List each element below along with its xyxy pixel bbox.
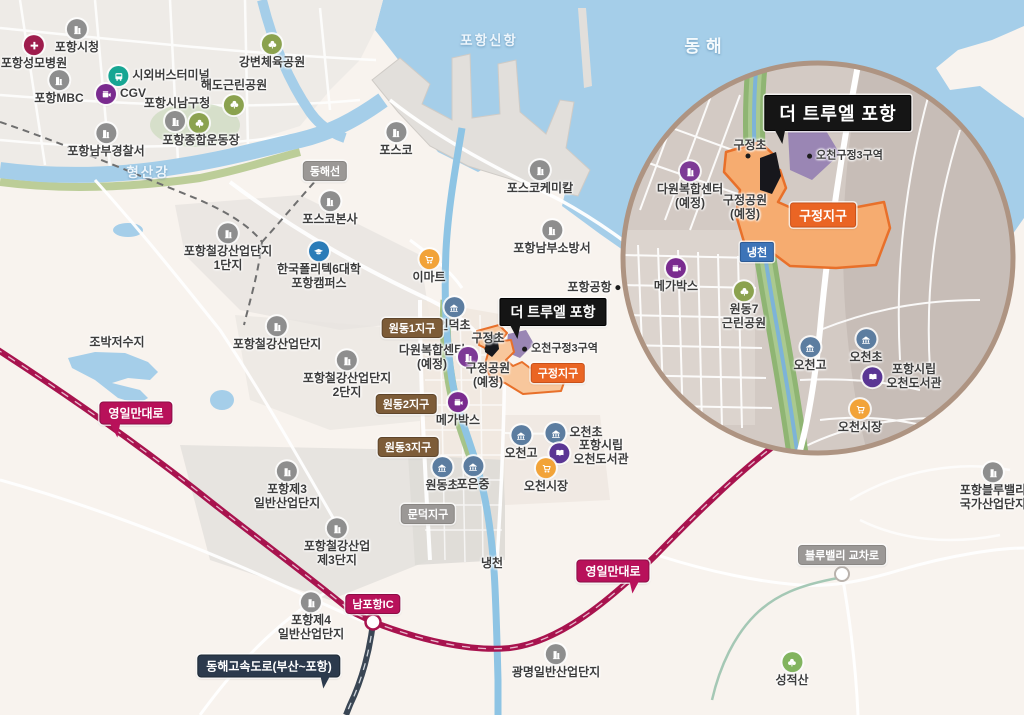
ocheon-gujeong3-zone-main: 오천구정3구역 [522, 343, 598, 356]
map-label: 포항블루밸리국가산업단지 [960, 484, 1024, 512]
map-label: 오천시장 [524, 480, 568, 494]
map-label: 구정공원(예정) [723, 194, 767, 222]
intercity-bus-terminal: 시외버스터미널 [108, 66, 209, 86]
poi-dot [807, 153, 812, 158]
map-label: 형산강 [126, 165, 169, 181]
map-label: 포항성모병원 [1, 57, 67, 71]
cinema-icon [666, 258, 686, 278]
pohang-4th-general-industrial: 포항제4일반산업단지 [278, 592, 344, 642]
building-icon [327, 518, 347, 538]
pohang-sports-complex: 포항종합운동장 [162, 134, 239, 148]
map-label: 포은중 [456, 478, 489, 492]
map-label: 메가박스 [654, 280, 698, 294]
wondong3-district-badge: 원동3지구 [378, 437, 439, 457]
ocheon-gujeong3-zone-inset: 오천구정3구역 [807, 150, 883, 163]
school-icon [800, 337, 820, 357]
map-label: 구정초 [471, 332, 504, 346]
map-label: 포항MBC [34, 92, 83, 106]
school-icon [463, 456, 483, 476]
dawon-complex-inset: 다원복합센터(예정) [657, 161, 723, 211]
donghae-line-badge: 동해선 [303, 161, 347, 181]
park-icon [224, 95, 244, 115]
pohang-airport: 포항공항 [567, 281, 620, 295]
map-label: 오천고 [793, 359, 826, 373]
gujeong-elementary-dot-inset [746, 154, 751, 159]
map-label: 원동7근린공원 [722, 303, 766, 331]
hospital-icon [24, 35, 44, 55]
gangbyeon-sports-park: 강변체육공원 [239, 34, 305, 70]
map-label: 포항남부소방서 [513, 242, 590, 256]
pohang-new-port-label: 포항신항 [460, 33, 518, 49]
map-label: 포항시립오천도서관 [886, 363, 941, 391]
pohang-nambu-police: 포항남부경찰서 [67, 123, 144, 159]
library-icon [862, 367, 882, 387]
map-label: 메가박스 [436, 414, 480, 428]
donghae-expressway-badge: 동해고속도로(부산~포항) [197, 655, 340, 678]
hyeongsan-river-label: 형산강 [126, 165, 169, 181]
truel-pohang-badge-inset: 더 트루엘 포항 [764, 95, 911, 131]
map-label: 오천시장 [838, 421, 882, 435]
mundeok-district-badge: 문덕지구 [401, 504, 455, 524]
map-label: 포항시립오천도서관 [573, 439, 628, 467]
school-icon [444, 297, 464, 317]
pohang-mbc: 포항MBC [34, 70, 83, 106]
ocheon-library-inset: 포항시립오천도서관 [862, 363, 941, 391]
gujeong-elementary-inset: 구정초 [733, 139, 766, 153]
steel-industrial-complex: 포항철강산업단지 [233, 316, 321, 352]
school-icon [856, 329, 876, 349]
ocheon-market-inset: 오천시장 [838, 399, 882, 435]
map-label: 오천구정3구역 [531, 343, 598, 356]
map-label: 구정초 [733, 139, 766, 153]
map-label: 강변체육공원 [239, 56, 305, 70]
megabox-inset: 메가박스 [654, 258, 698, 294]
stadium-park-icon [189, 113, 209, 133]
cinema-icon [448, 392, 468, 412]
map-label: 냉천 [481, 557, 503, 571]
naengcheon-badge-inset: 냉천 [740, 242, 774, 262]
building-icon [49, 70, 69, 90]
building-icon [337, 350, 357, 370]
school-icon [432, 457, 452, 477]
yeongilman-road-badge-right: 영일만대로 [576, 560, 649, 583]
posco-hq: 포스코본사 [302, 191, 357, 227]
bus-icon [108, 66, 128, 86]
pohang-nambu-fire-station: 포항남부소방서 [513, 220, 590, 256]
cart-icon [419, 249, 439, 269]
park-icon [734, 281, 754, 301]
ocheon-elementary-inset: 오천초 [849, 329, 882, 365]
map-label: 포항제3일반산업단지 [254, 483, 320, 511]
map-label: 한국폴리텍6대학포항캠퍼스 [277, 263, 361, 291]
map-label: CGV [120, 87, 146, 101]
map-label: 포항신항 [460, 33, 518, 49]
poi-dot [485, 347, 490, 352]
ocheon-high-inset: 오천고 [793, 337, 826, 373]
steel-industrial-complex-1: 포항철강산업단지1단지 [184, 223, 272, 273]
nampohang-ic-badge: 남포항IC [345, 594, 400, 614]
gujeong-district-badge-main: 구정지구 [531, 363, 585, 383]
school-icon [511, 425, 531, 445]
location-map: 포항시청포항성모병원시외버스터미널포항MBCCGV포항시남구청포항종합운동장해도… [0, 0, 1024, 715]
bluevalley-junction-badge: 블루밸리 교차로 [798, 545, 886, 565]
poeun-middle: 포은중 [456, 456, 489, 492]
gujeong-district-badge-inset: 구정지구 [790, 203, 856, 228]
cart-icon [536, 458, 556, 478]
map-label: 포항공항 [567, 281, 611, 295]
gujeong-elementary-dot-main [485, 347, 490, 352]
map-label: 동해 [684, 37, 727, 57]
building-icon [983, 462, 1003, 482]
gujeong-park-main: 구정공원(예정) [466, 362, 510, 390]
cinema-icon [96, 84, 116, 104]
building-icon [218, 223, 238, 243]
yeongilman-road-badge-left: 영일만대로 [99, 402, 172, 425]
truel-pohang-badge-main: 더 트루엘 포항 [499, 298, 606, 326]
map-label: 광명일반산업단지 [512, 666, 600, 680]
poi-dot [522, 346, 527, 351]
wondong1-district-badge: 원동1지구 [382, 318, 443, 338]
steel-industrial-complex-2: 포항철강산업단지2단지 [303, 350, 391, 400]
wondong7-park-inset: 원동7근린공원 [722, 281, 766, 331]
building-icon [301, 592, 321, 612]
wondong2-district-badge: 원동2지구 [376, 394, 437, 414]
map-label: 해도근린공원 [201, 79, 267, 93]
map-label: 조박저수지 [89, 336, 144, 350]
stadium-building-icon [165, 111, 185, 131]
map-label: 포스코케미칼 [507, 182, 573, 196]
ocheon-market-main: 오천시장 [524, 458, 568, 494]
steel-3rd-complex: 포항철강산업제3단지 [304, 518, 370, 568]
gujeong-elementary-main: 구정초 [471, 332, 504, 346]
map-label: 포항남부경찰서 [67, 145, 144, 159]
cart-icon [850, 399, 870, 419]
building-icon [165, 111, 185, 131]
building-icon [546, 644, 566, 664]
gujeong-park-inset: 구정공원(예정) [723, 194, 767, 222]
map-label: 포항철강산업단지1단지 [184, 245, 272, 273]
college-icon [309, 241, 329, 261]
map-label: 구정공원(예정) [466, 362, 510, 390]
building-icon [267, 316, 287, 336]
mountain-icon [782, 652, 802, 672]
pohang-3rd-general-industrial: 포항제3일반산업단지 [254, 461, 320, 511]
emart: 이마트 [412, 249, 445, 285]
building-icon [320, 191, 340, 211]
building-icon [530, 160, 550, 180]
park-icon [262, 34, 282, 54]
map-labels-layer: 포항시청포항성모병원시외버스터미널포항MBCCGV포항시남구청포항종합운동장해도… [0, 0, 1024, 715]
map-label: 성적산 [775, 674, 808, 688]
ocheon-high-main: 오천고 [504, 425, 537, 461]
map-label: 이마트 [412, 271, 445, 285]
map-label: 다원복합센터(예정) [657, 183, 723, 211]
map-label: 포항종합운동장 [162, 134, 239, 148]
map-label: 시외버스터미널 [132, 69, 209, 83]
gwangmyeong-industrial: 광명일반산업단지 [512, 644, 600, 680]
building-icon [542, 220, 562, 240]
poi-dot [616, 285, 621, 290]
jobak-reservoir: 조박저수지 [89, 336, 144, 350]
posco: 포스코 [379, 122, 412, 158]
pohang-st-marys-hospital: 포항성모병원 [1, 35, 67, 71]
korea-polytechnic-campus: 한국폴리텍6대학포항캠퍼스 [277, 241, 361, 291]
park-icon [189, 113, 209, 133]
map-label: 다원복합센터(예정) [399, 344, 465, 372]
building-icon [67, 19, 87, 39]
map-label: 인덕초 [437, 319, 470, 333]
map-label: 원동초 [425, 479, 458, 493]
map-label: 포스코 [379, 144, 412, 158]
map-label: 포스코본사 [302, 213, 357, 227]
cgv: CGV [96, 84, 146, 104]
building-icon [386, 122, 406, 142]
donghae-sea-label: 동해 [684, 37, 727, 57]
seongjeoksan-mountain: 성적산 [775, 652, 808, 688]
megabox-main: 메가박스 [436, 392, 480, 428]
wondong-elementary: 원동초 [425, 457, 458, 493]
posco-chemical: 포스코케미칼 [507, 160, 573, 196]
poi-dot [746, 154, 751, 159]
dawon-complex-main: 다원복합센터(예정) [399, 344, 465, 372]
naengcheon-river-label: 냉천 [481, 557, 503, 571]
map-label: 포항제4일반산업단지 [278, 614, 344, 642]
haedo-park: 해도근린공원 [201, 79, 267, 115]
indeok-elementary: 인덕초 [437, 297, 470, 333]
map-label: 포항철강산업제3단지 [304, 540, 370, 568]
building-icon [277, 461, 297, 481]
building-icon [96, 123, 116, 143]
pohang-bluevalley-industrial: 포항블루밸리국가산업단지 [960, 462, 1024, 512]
map-label: 오천구정3구역 [816, 150, 883, 163]
building2-icon [680, 161, 700, 181]
